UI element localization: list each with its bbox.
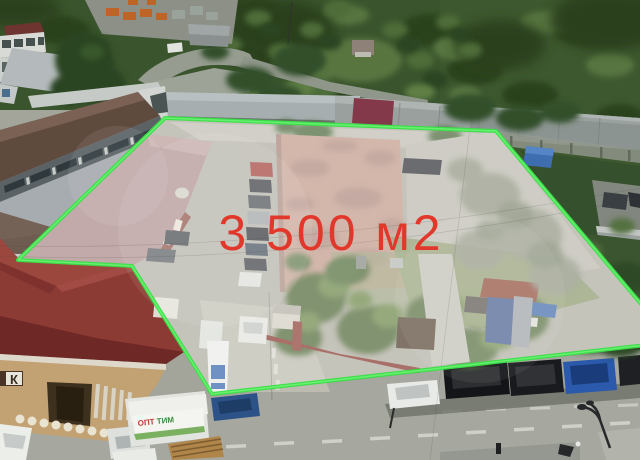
- svg-text:3 500 м2: 3 500 м2: [218, 205, 443, 261]
- svg-text:ОПТ: ОПТ: [137, 417, 155, 428]
- svg-text:ТИМ: ТИМ: [156, 415, 174, 426]
- svg-text:К: К: [10, 372, 18, 387]
